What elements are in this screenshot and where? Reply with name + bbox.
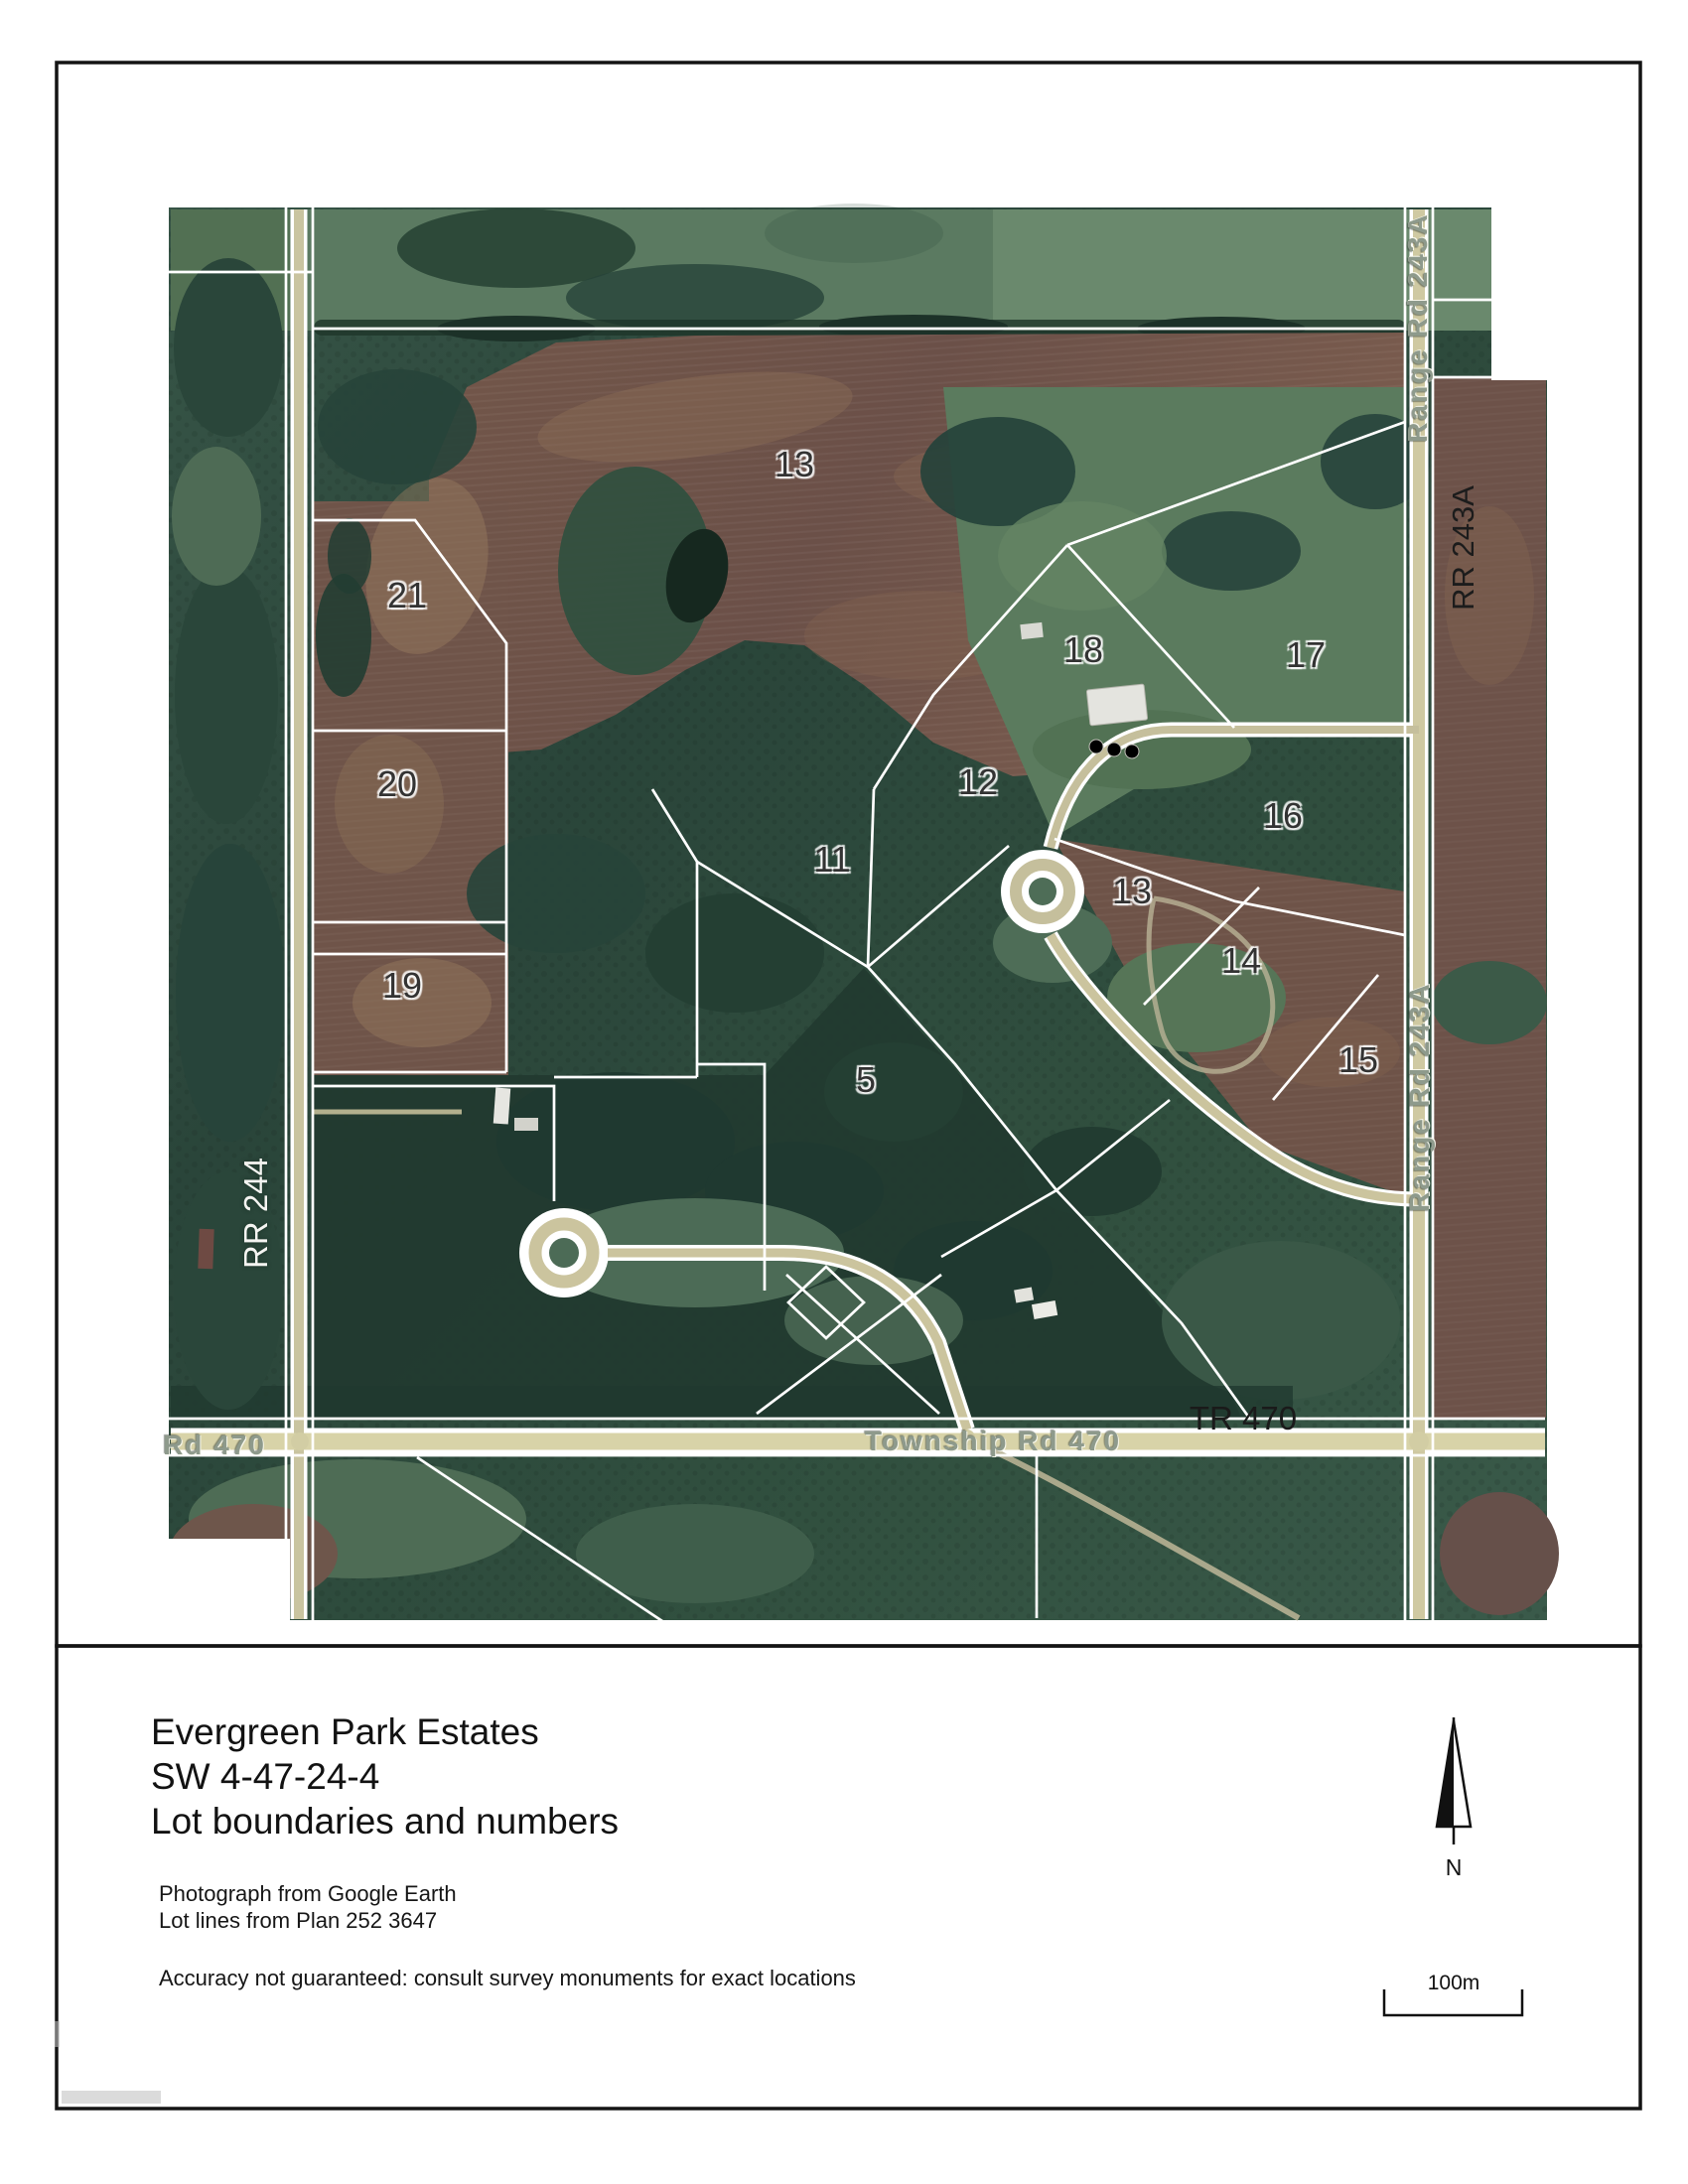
scale-label: 100m xyxy=(1428,1972,1480,1995)
title-block: Evergreen Park Estates SW 4-47-24-4 Lot … xyxy=(151,1709,619,1843)
accuracy-disclaimer: Accuracy not guaranteed: consult survey … xyxy=(159,1966,856,1991)
map-graphic xyxy=(0,0,1688,2184)
aerial-photo xyxy=(169,204,1559,1621)
source-note-lotlines: Lot lines from Plan 252 3647 xyxy=(159,1907,457,1934)
source-notes: Photograph from Google Earth Lot lines f… xyxy=(159,1880,457,1934)
source-note-photo: Photograph from Google Earth xyxy=(159,1880,457,1907)
north-arrow-icon xyxy=(1437,1717,1471,1844)
map-title-line3: Lot boundaries and numbers xyxy=(151,1799,619,1843)
map-title-line2: SW 4-47-24-4 xyxy=(151,1754,619,1799)
map-title-line1: Evergreen Park Estates xyxy=(151,1709,619,1754)
north-label: N xyxy=(1446,1854,1463,1881)
map-sheet: 1321201918171211161314155RR 244RR 243ARa… xyxy=(0,0,1688,2184)
